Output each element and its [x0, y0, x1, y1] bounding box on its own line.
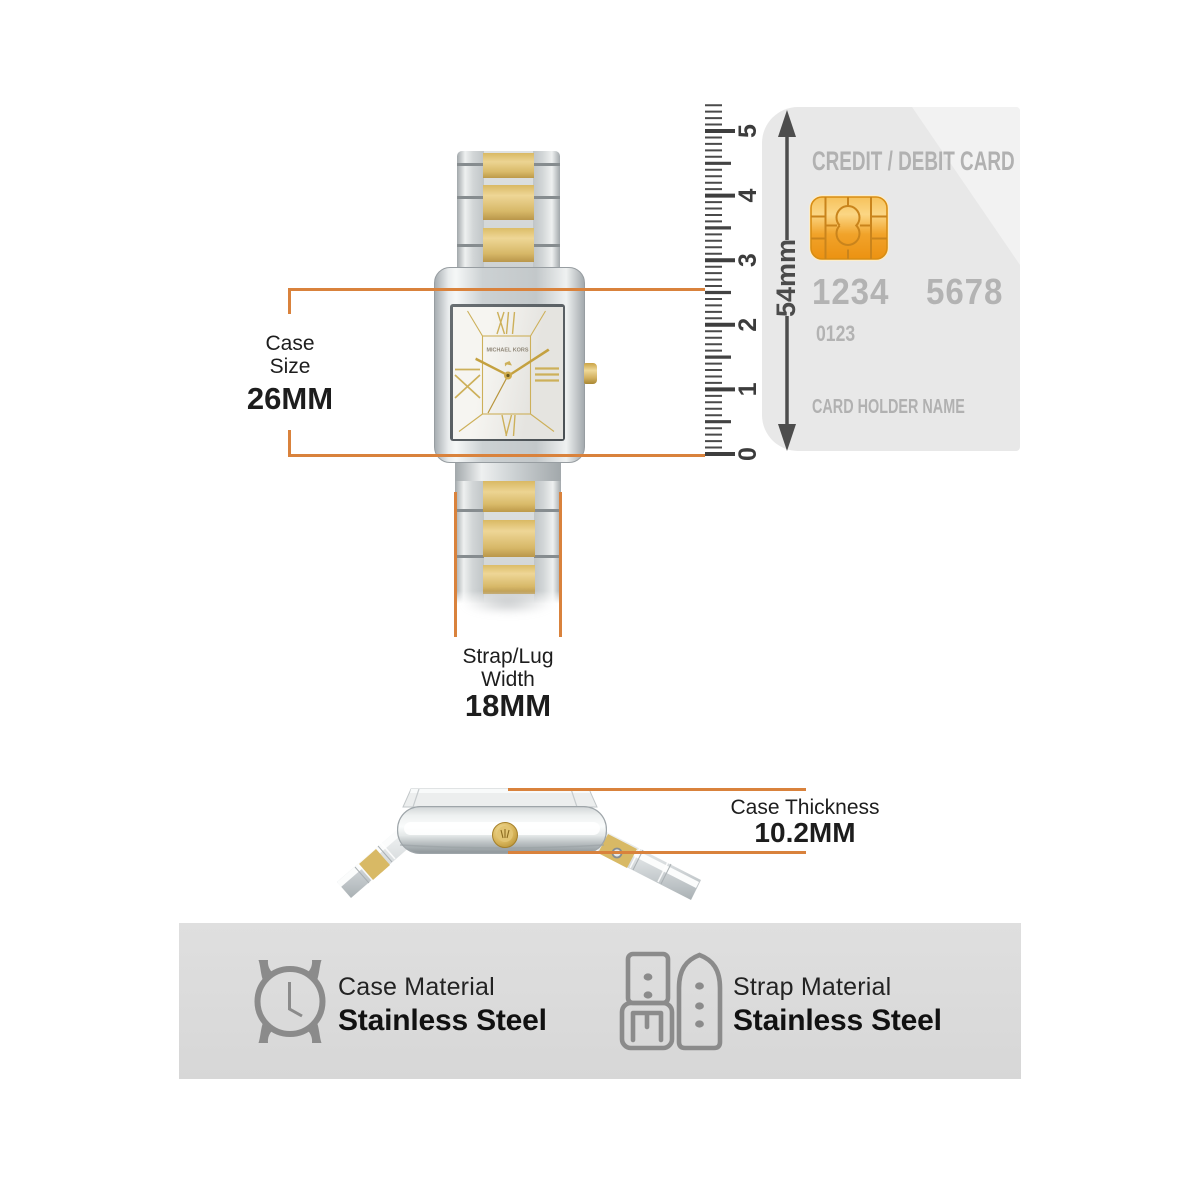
svg-text:1: 1 — [734, 382, 762, 396]
svg-text:54mm: 54mm — [771, 239, 801, 317]
svg-text:0: 0 — [734, 447, 762, 461]
svg-text:MICHAEL KORS: MICHAEL KORS — [487, 348, 529, 354]
svg-text:3: 3 — [734, 253, 762, 267]
svg-text:4: 4 — [734, 189, 762, 203]
svg-text:5: 5 — [734, 124, 762, 138]
svg-text:2: 2 — [734, 318, 762, 332]
